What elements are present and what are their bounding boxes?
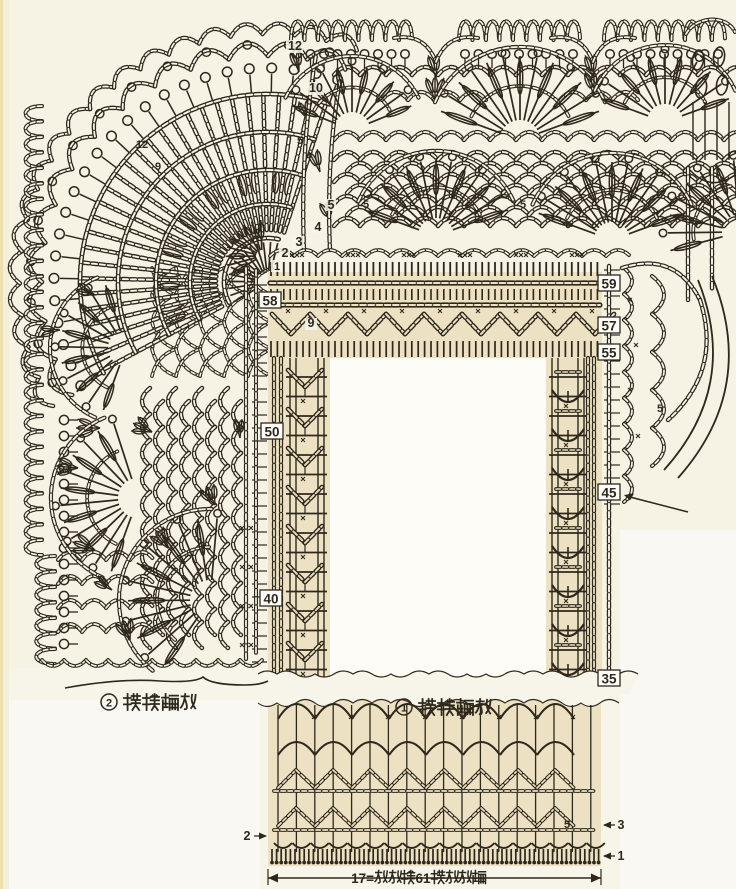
svg-text:5: 5 — [520, 199, 526, 211]
svg-text:17=: 17= — [351, 871, 374, 886]
svg-text:2: 2 — [244, 829, 251, 843]
svg-text:2: 2 — [106, 698, 112, 710]
svg-text:50: 50 — [264, 425, 279, 440]
svg-text:1: 1 — [618, 849, 625, 863]
svg-text:9: 9 — [155, 161, 161, 173]
svg-text:45: 45 — [601, 486, 617, 501]
svg-text:3: 3 — [618, 818, 625, 832]
svg-text:57: 57 — [601, 319, 616, 334]
svg-text:12: 12 — [288, 39, 302, 53]
svg-text:40: 40 — [263, 592, 278, 607]
svg-text:9: 9 — [308, 316, 315, 330]
svg-text:10: 10 — [309, 81, 323, 95]
svg-text:35: 35 — [601, 672, 617, 687]
svg-text:1: 1 — [274, 261, 280, 273]
svg-text:59: 59 — [601, 277, 616, 292]
svg-text:61: 61 — [415, 871, 431, 886]
svg-text:4: 4 — [315, 220, 322, 234]
svg-text:5: 5 — [253, 227, 260, 241]
svg-text:1: 1 — [401, 703, 407, 715]
svg-text:2: 2 — [282, 246, 289, 260]
svg-text:5: 5 — [657, 403, 663, 415]
svg-text:55: 55 — [601, 346, 617, 361]
svg-text:12: 12 — [136, 139, 148, 151]
svg-text:5: 5 — [363, 199, 369, 211]
svg-text:5: 5 — [564, 819, 570, 831]
svg-text:5: 5 — [297, 135, 303, 147]
svg-text:58: 58 — [262, 294, 278, 309]
svg-text:3: 3 — [296, 235, 303, 249]
svg-text:5: 5 — [328, 198, 335, 212]
